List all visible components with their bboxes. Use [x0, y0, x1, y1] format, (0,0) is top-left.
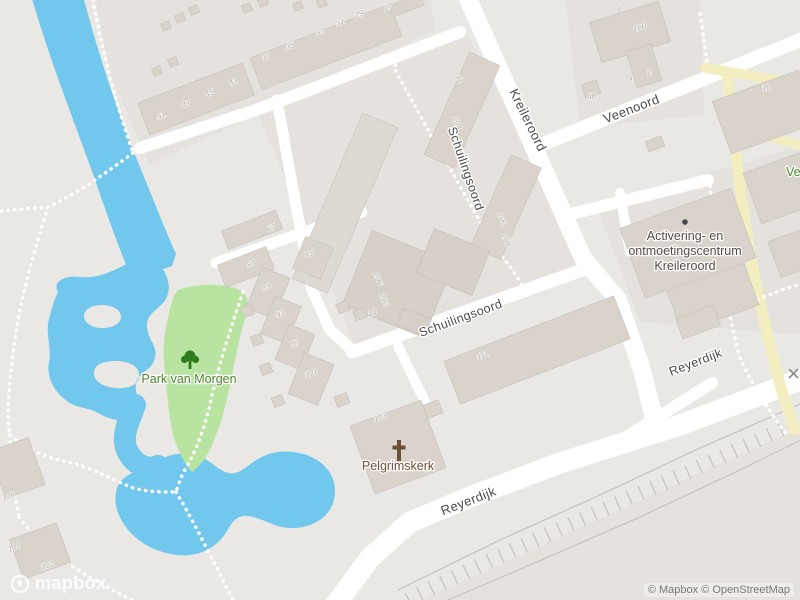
mapbox-logo-text: mapbox — [35, 573, 106, 594]
community-centre-label-line2: ontmoetingscentrum — [628, 244, 741, 258]
community-centre-label-line1: Activering- en — [647, 229, 723, 243]
road-church-stub — [398, 346, 428, 408]
map-attribution[interactable]: © Mapbox © OpenStreetMap — [644, 583, 794, 597]
clipped-edge-label: Ve — [786, 165, 800, 179]
park-label: Park van Morgen — [141, 372, 236, 386]
west-pond — [48, 258, 169, 420]
mapbox-logo[interactable]: mapbox — [10, 573, 106, 594]
street-label-reyerdijk-east: Reyerdijk — [667, 346, 724, 379]
attribution-text: © Mapbox © OpenStreetMap — [648, 584, 790, 596]
map-canvas[interactable]: 51 47 45 43 37 35 33 31 29 27 8 100 4 2 … — [0, 0, 800, 600]
map-tiles: 51 47 45 43 37 35 33 31 29 27 8 100 4 2 … — [0, 0, 800, 600]
mapbox-logo-icon — [10, 574, 30, 594]
church-label: Pelgrimskerk — [362, 459, 435, 473]
pond-channel — [125, 405, 158, 468]
community-centre-label-line3: Kreileroord — [654, 259, 715, 273]
dot-icon — [682, 219, 688, 225]
